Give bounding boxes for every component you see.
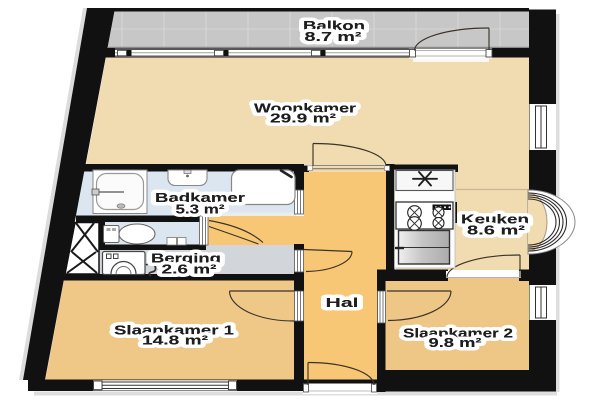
svg-text:29.9 m²: 29.9 m²	[270, 112, 336, 126]
svg-text:8.7 m²: 8.7 m²	[305, 30, 362, 44]
svg-text:Hal: Hal	[326, 296, 359, 310]
svg-text:9.8 m²: 9.8 m²	[429, 336, 482, 350]
svg-text:14.8 m²: 14.8 m²	[142, 334, 208, 348]
svg-text:5.3 m²: 5.3 m²	[176, 203, 225, 217]
svg-text:8.6 m²: 8.6 m²	[467, 224, 525, 238]
svg-text:2.6 m²: 2.6 m²	[162, 263, 217, 277]
